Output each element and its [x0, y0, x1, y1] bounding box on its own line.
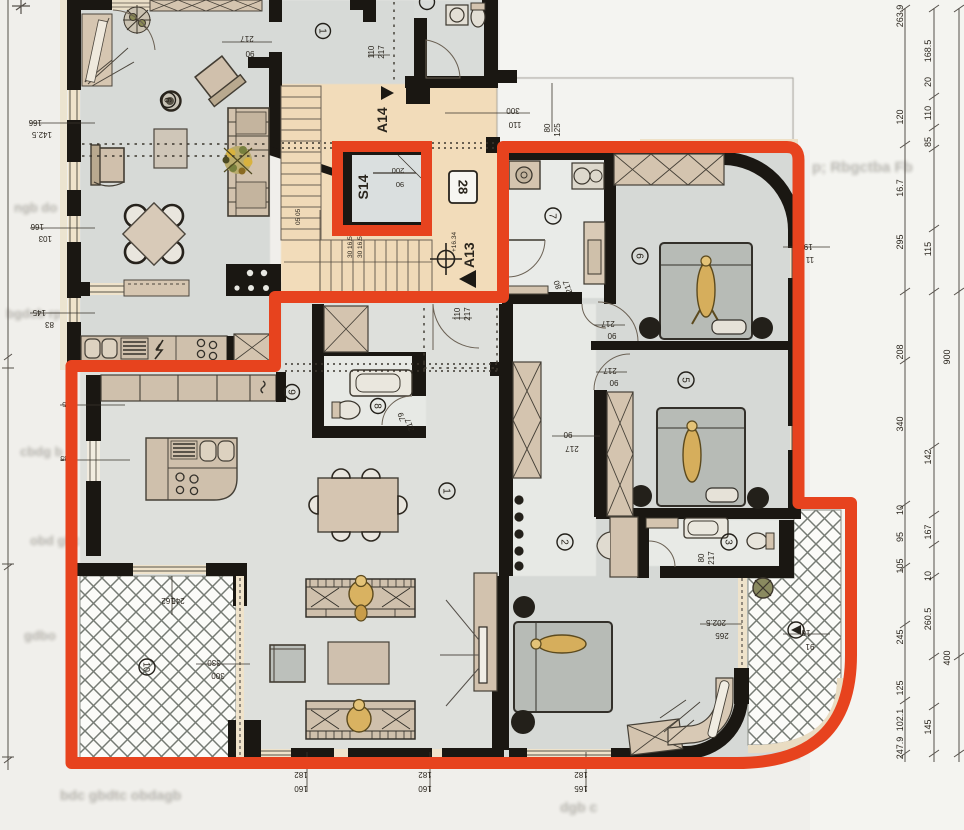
svg-text:5: 5: [680, 377, 691, 383]
svg-text:260.5: 260.5: [923, 608, 933, 631]
svg-text:217: 217: [240, 34, 254, 43]
svg-text:10: 10: [142, 662, 152, 672]
svg-text:16: 16: [801, 628, 810, 637]
svg-text:90: 90: [396, 180, 404, 189]
svg-text:182: 182: [574, 770, 588, 779]
svg-text:ngb do: ngb do: [14, 200, 57, 215]
svg-text:6: 6: [162, 97, 173, 103]
svg-text:125: 125: [553, 123, 562, 137]
svg-text:208: 208: [895, 344, 905, 359]
svg-text:115: 115: [923, 242, 933, 256]
svg-text:265: 265: [715, 631, 729, 640]
svg-text:160: 160: [418, 784, 432, 793]
svg-text:166: 166: [30, 222, 44, 231]
svg-text:110: 110: [453, 307, 462, 320]
svg-text:28: 28: [456, 180, 471, 194]
svg-text:p; Rbgctba Fb: p; Rbgctba Fb: [812, 159, 913, 176]
svg-text:300: 300: [506, 106, 520, 115]
svg-text:900: 900: [942, 349, 952, 364]
svg-text:245: 245: [171, 596, 185, 605]
svg-text:217: 217: [603, 366, 617, 375]
svg-text:400: 400: [942, 650, 952, 665]
svg-text:gdbo: gdbo: [24, 628, 56, 643]
svg-text:330: 330: [207, 658, 221, 667]
svg-text:182: 182: [294, 770, 308, 779]
svg-text:105: 105: [895, 558, 905, 573]
svg-text:90: 90: [563, 430, 572, 439]
svg-text:202.5: 202.5: [705, 618, 726, 627]
svg-text:90: 90: [609, 378, 618, 387]
svg-text:95: 95: [895, 532, 905, 542]
svg-text:16.7: 16.7: [895, 179, 905, 197]
svg-text:91: 91: [805, 642, 814, 651]
svg-text:142.5: 142.5: [31, 130, 52, 139]
svg-text:6: 6: [634, 253, 645, 259]
svg-text:110: 110: [508, 120, 521, 129]
svg-text:166: 166: [28, 118, 42, 127]
svg-text:295: 295: [895, 234, 905, 249]
svg-text:30 16.5: 30 16.5: [357, 236, 364, 258]
svg-text:200: 200: [392, 166, 405, 175]
svg-text:182: 182: [418, 770, 432, 779]
svg-text:+16.34: +16.34: [451, 232, 458, 252]
svg-text:20: 20: [923, 77, 933, 87]
svg-text:11: 11: [805, 255, 814, 264]
svg-text:A13: A13: [461, 242, 477, 268]
svg-text:S14: S14: [355, 174, 371, 199]
svg-text:90: 90: [607, 331, 616, 340]
svg-text:103: 103: [38, 234, 52, 243]
svg-text:160: 160: [294, 784, 308, 793]
svg-text:80: 80: [697, 553, 706, 562]
svg-text:30 16.5: 30 16.5: [347, 236, 354, 258]
svg-text:A14: A14: [374, 107, 390, 133]
svg-text:80: 80: [543, 123, 552, 132]
svg-text:dgb c: dgb c: [560, 799, 598, 815]
svg-text:145: 145: [923, 719, 933, 734]
svg-text:217: 217: [377, 45, 386, 59]
svg-text:3: 3: [723, 539, 734, 545]
svg-text:217: 217: [707, 551, 716, 565]
svg-text:10: 10: [895, 505, 905, 515]
svg-text:83: 83: [45, 320, 54, 329]
svg-text:245: 245: [895, 629, 905, 644]
svg-text:110: 110: [367, 45, 376, 58]
svg-text:10: 10: [923, 571, 933, 581]
svg-text:263.9: 263.9: [895, 5, 905, 28]
svg-text:167: 167: [923, 524, 933, 539]
svg-text:7: 7: [547, 213, 558, 219]
svg-text:85: 85: [923, 137, 933, 147]
svg-text:142: 142: [923, 449, 933, 464]
svg-text:217: 217: [601, 319, 615, 328]
svg-text:110: 110: [923, 106, 933, 120]
svg-text:300: 300: [211, 671, 225, 680]
svg-text:2: 2: [559, 539, 570, 545]
svg-text:cbdg b: cbdg b: [20, 444, 63, 459]
svg-text:120: 120: [895, 109, 905, 124]
svg-text:247.9: 247.9: [895, 737, 905, 760]
svg-text:217: 217: [565, 444, 579, 453]
svg-text:168.5: 168.5: [923, 40, 933, 63]
svg-text:217: 217: [463, 307, 472, 321]
svg-text:1: 1: [441, 488, 452, 494]
svg-text:340: 340: [895, 416, 905, 431]
svg-text:8: 8: [372, 403, 383, 409]
svg-text:102.1: 102.1: [895, 709, 905, 732]
svg-text:05 05: 05 05: [295, 208, 302, 225]
svg-text:125: 125: [895, 680, 905, 695]
svg-text:1: 1: [317, 28, 328, 34]
svg-text:165: 165: [574, 784, 588, 793]
svg-text:9: 9: [286, 389, 297, 395]
svg-text:145: 145: [32, 308, 46, 317]
svg-text:bdc gbdtc obdagb: bdc gbdtc obdagb: [60, 787, 181, 803]
svg-text:90: 90: [245, 49, 254, 58]
